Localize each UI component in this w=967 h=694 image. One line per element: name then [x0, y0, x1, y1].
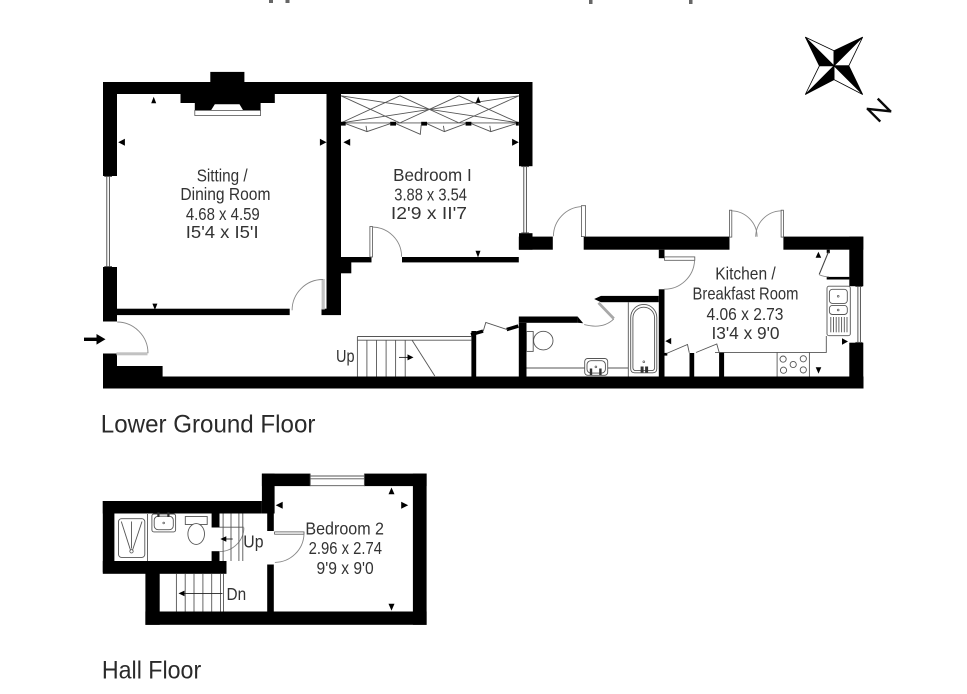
- svg-text:9'9 x 9'0: 9'9 x 9'0: [317, 558, 374, 578]
- svg-text:Bedroom I: Bedroom I: [393, 165, 472, 185]
- svg-text:Kitchen /: Kitchen /: [715, 264, 776, 284]
- svg-text:I3'4 x 9'0: I3'4 x 9'0: [711, 323, 779, 343]
- svg-text:Bedroom 2: Bedroom 2: [305, 518, 384, 538]
- svg-text:Dining Room: Dining Room: [180, 184, 270, 204]
- svg-text:I5'4 x I5'I: I5'4 x I5'I: [186, 222, 259, 242]
- svg-text:Sitting /: Sitting /: [197, 165, 248, 185]
- svg-text:Hall Floor: Hall Floor: [102, 656, 201, 684]
- svg-text:I2'9 x II'7: I2'9 x II'7: [391, 203, 467, 223]
- svg-text:Up: Up: [243, 532, 263, 552]
- svg-text:4.68 x 4.59: 4.68 x 4.59: [186, 204, 260, 224]
- svg-text:Lower Ground Floor: Lower Ground Floor: [101, 410, 316, 438]
- svg-text:2.96 x 2.74: 2.96 x 2.74: [309, 538, 382, 558]
- svg-text:Up: Up: [336, 346, 355, 366]
- svg-text:4.06 x 2.73: 4.06 x 2.73: [707, 304, 784, 324]
- svg-text:Breakfast Room: Breakfast Room: [693, 284, 799, 304]
- svg-text:Dn: Dn: [227, 584, 247, 604]
- svg-text:3.88 x 3.54: 3.88 x 3.54: [394, 184, 467, 204]
